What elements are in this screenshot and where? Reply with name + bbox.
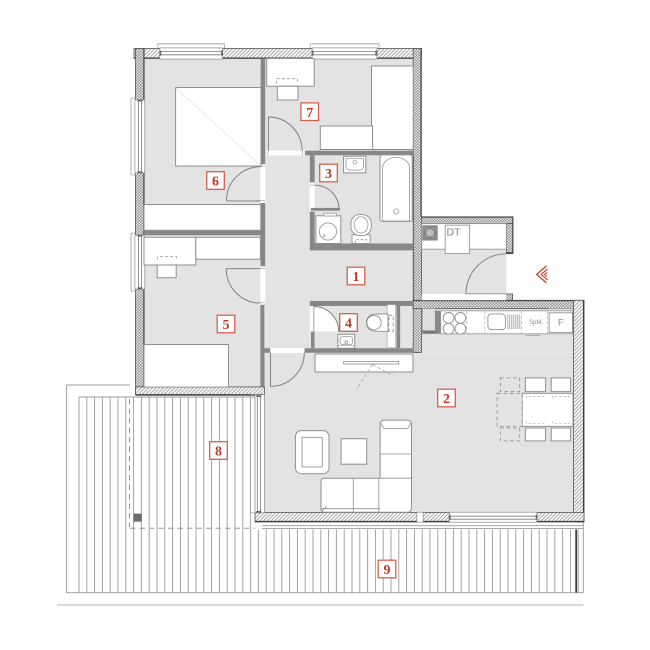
- svg-text:1: 1: [353, 270, 360, 285]
- svg-text:9: 9: [384, 563, 391, 578]
- svg-text:6: 6: [212, 175, 219, 190]
- svg-text:8: 8: [215, 445, 222, 460]
- svg-text:7: 7: [306, 106, 313, 121]
- svg-text:5: 5: [223, 318, 230, 333]
- svg-text:3: 3: [325, 167, 332, 182]
- svg-text:SpM.: SpM.: [529, 320, 543, 326]
- svg-text:4: 4: [345, 317, 352, 332]
- svg-text:2: 2: [443, 392, 450, 407]
- svg-text:F: F: [558, 318, 564, 328]
- svg-text:DT: DT: [447, 227, 462, 239]
